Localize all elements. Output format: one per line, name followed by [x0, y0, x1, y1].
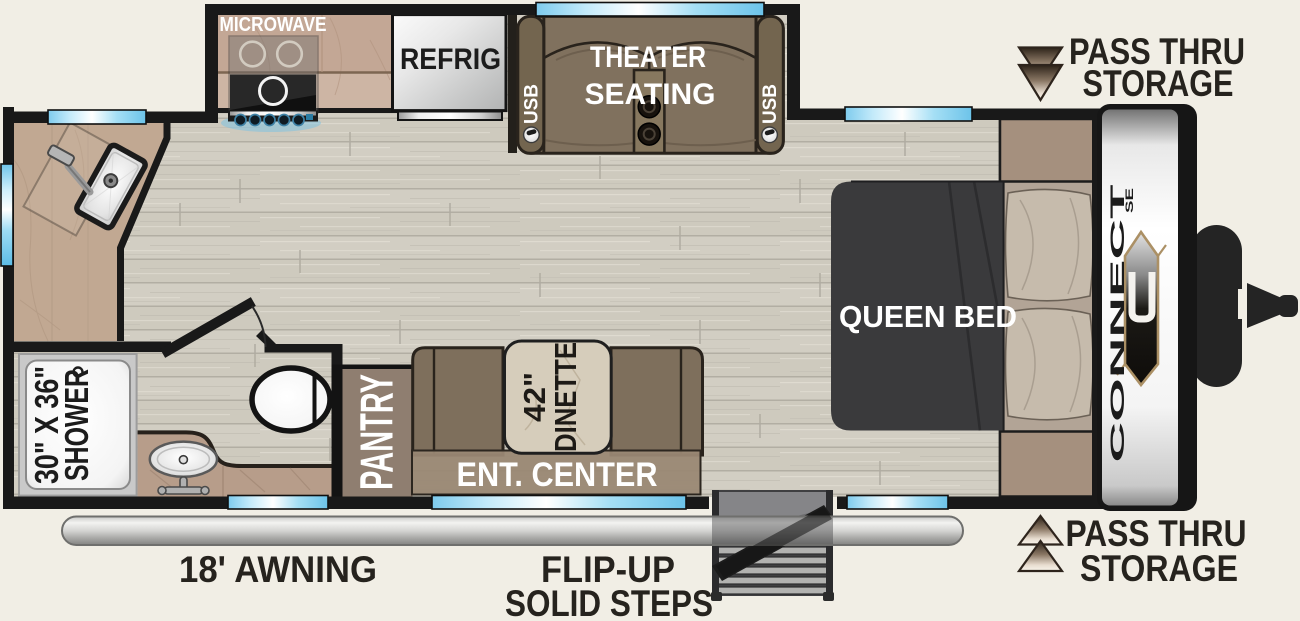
svg-text:USB: USB	[522, 84, 543, 124]
svg-text:THEATER: THEATER	[590, 41, 706, 74]
svg-text:STORAGE: STORAGE	[1080, 548, 1238, 589]
svg-text:SE: SE	[1124, 188, 1136, 213]
svg-text:STORAGE: STORAGE	[1083, 63, 1234, 104]
svg-text:SHOWER: SHOWER	[58, 369, 95, 481]
svg-text:DINETTE: DINETTE	[548, 342, 583, 452]
svg-text:42": 42"	[517, 372, 552, 422]
svg-text:MICROWAVE: MICROWAVE	[220, 14, 327, 36]
svg-text:ENT. CENTER: ENT. CENTER	[457, 456, 658, 494]
svg-text:QUEEN BED: QUEEN BED	[839, 299, 1017, 334]
svg-text:SOLID STEPS: SOLID STEPS	[505, 583, 713, 621]
svg-text:PANTRY: PANTRY	[351, 374, 403, 490]
svg-text:USB: USB	[760, 84, 781, 124]
svg-text:SEATING: SEATING	[585, 78, 716, 111]
svg-text:REFRIG: REFRIG	[400, 43, 501, 76]
svg-text:CONNECT: CONNECT	[1108, 183, 1129, 462]
svg-text:18' AWNING: 18' AWNING	[179, 549, 377, 590]
